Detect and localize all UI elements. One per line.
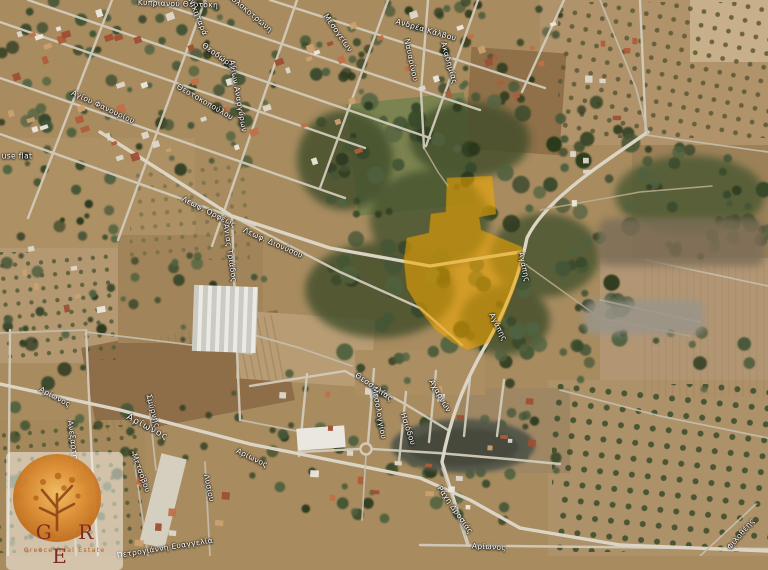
- pond: [391, 419, 535, 473]
- roundabout: [361, 444, 372, 455]
- greenhouse: [192, 285, 258, 353]
- watermark-subtitle: Greece Real Estate: [6, 546, 123, 554]
- agency-watermark: G R E Greece Real Estate: [6, 452, 123, 570]
- map-screenshot: { "map": { "type": "satellite", "parcel"…: [0, 0, 768, 556]
- watermark-initials: G R E: [6, 520, 123, 568]
- warehouse: [296, 425, 345, 450]
